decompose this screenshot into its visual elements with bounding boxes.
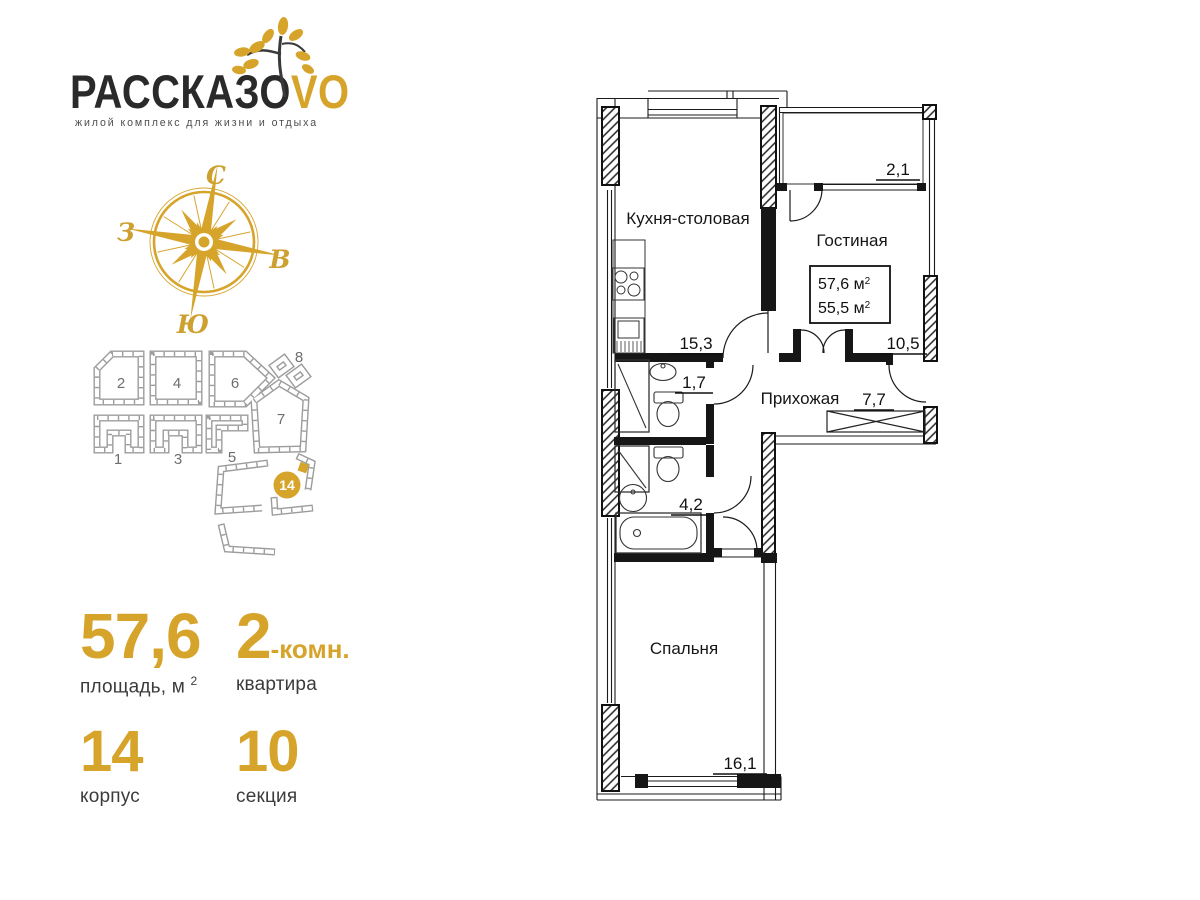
room-label-hallway: Прихожая <box>761 389 840 408</box>
building-label-3: 3 <box>174 451 182 468</box>
building-label-5: 5 <box>228 449 236 466</box>
kitchen-appliances-icon <box>612 240 645 353</box>
building-outlines <box>97 354 313 552</box>
structural-columns <box>602 105 937 791</box>
compass-north-label: С <box>206 161 226 190</box>
building-label-1: 1 <box>114 451 122 468</box>
building-label-4: 4 <box>173 375 181 392</box>
compass-west-label: З <box>117 218 135 247</box>
svg-text:55,5 м2: 55,5 м2 <box>818 300 871 317</box>
room-area-living: 10,5 <box>886 334 919 353</box>
room-label-living: Гостиная <box>816 231 887 250</box>
logo-branch-icon <box>231 16 315 97</box>
room-area-wc: 1,7 <box>682 373 706 392</box>
floor-plan: 57,6 м2 55,5 м2 Кухня-столовая Гостиная … <box>597 91 937 800</box>
wc-fixtures-icon <box>615 360 683 432</box>
site-plan: 1 2 3 4 5 6 7 8 14 <box>97 349 313 552</box>
page-graphics: С В З Ю <box>0 0 1200 900</box>
compass-east-label: В <box>268 245 290 274</box>
room-label-bedroom: Спальня <box>650 639 718 658</box>
room-area-balcony: 2,1 <box>886 160 910 179</box>
room-area-bedroom: 16,1 <box>723 754 756 773</box>
area-summary-box: 57,6 м2 55,5 м2 <box>810 266 890 323</box>
living-area-value: 55,5 м <box>818 300 865 317</box>
building-14-badge: 14 <box>274 472 301 499</box>
wardrobe-icon <box>827 411 925 432</box>
building-label-6: 6 <box>231 375 239 392</box>
building-label-8: 8 <box>295 349 303 366</box>
room-area-kitchen: 15,3 <box>679 334 712 353</box>
svg-text:14: 14 <box>279 477 295 493</box>
building-label-7: 7 <box>277 411 285 428</box>
total-area-value: 57,6 м <box>818 276 865 293</box>
page: { "brand": { "wordmark": "РАССКАЗО", "wo… <box>0 0 1200 900</box>
svg-text:57,6 м2: 57,6 м2 <box>818 276 871 293</box>
compass-icon: С В З Ю <box>114 152 295 339</box>
compass-south-label: Ю <box>176 310 209 339</box>
room-label-kitchen: Кухня-столовая <box>626 209 749 228</box>
room-area-hallway: 7,7 <box>862 390 886 409</box>
building-label-2: 2 <box>117 375 125 392</box>
room-area-bathroom: 4,2 <box>679 495 703 514</box>
